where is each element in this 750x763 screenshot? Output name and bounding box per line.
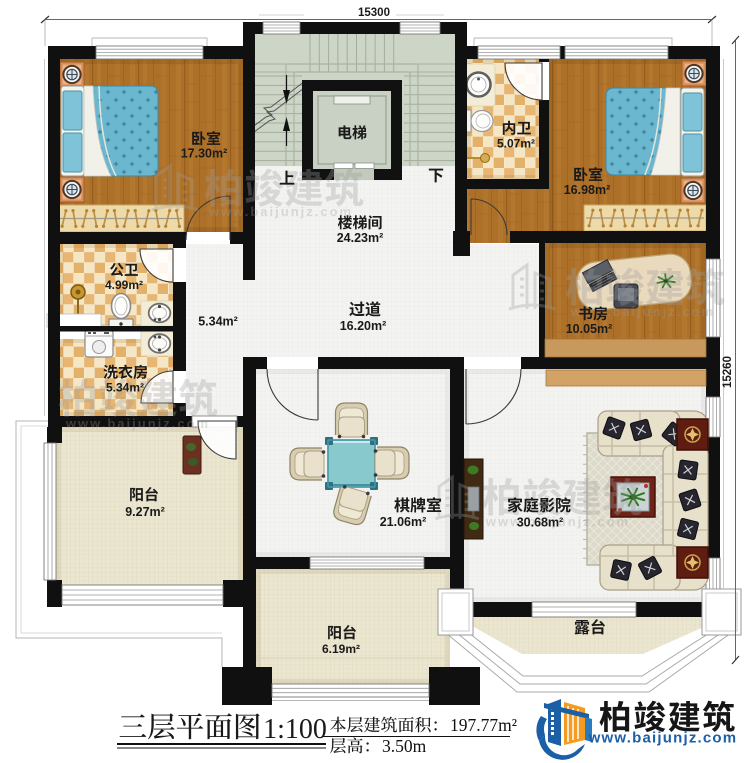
svg-text:15300: 15300 xyxy=(358,7,390,19)
svg-text:www.baijunjz.com: www.baijunjz.com xyxy=(208,204,353,219)
svg-text:www.baijunjz.com: www.baijunjz.com xyxy=(65,416,210,431)
svg-text:10.05m²: 10.05m² xyxy=(566,322,613,336)
svg-text:5.07m²: 5.07m² xyxy=(497,137,535,151)
svg-text:5.34m²: 5.34m² xyxy=(106,381,144,395)
svg-text:6.19m²: 6.19m² xyxy=(322,642,360,656)
svg-text:5.34m²: 5.34m² xyxy=(198,315,238,329)
svg-text:24.23m²: 24.23m² xyxy=(337,231,384,245)
svg-text:www.baijunjz.com: www.baijunjz.com xyxy=(588,730,738,747)
svg-text:16.98m²: 16.98m² xyxy=(564,183,611,197)
svg-text:17.30m²: 17.30m² xyxy=(181,147,228,161)
svg-text:30.68m²: 30.68m² xyxy=(517,516,564,530)
svg-text:9.27m²: 9.27m² xyxy=(125,505,165,519)
svg-text:15260: 15260 xyxy=(722,356,734,388)
svg-text:1:100: 1:100 xyxy=(263,714,327,745)
svg-text:3.50m: 3.50m xyxy=(382,736,427,756)
svg-text:16.20m²: 16.20m² xyxy=(340,319,387,333)
svg-text:4.99m²: 4.99m² xyxy=(105,278,143,292)
svg-text:21.06m²: 21.06m² xyxy=(380,515,427,529)
svg-text:197.77m²: 197.77m² xyxy=(450,715,517,735)
